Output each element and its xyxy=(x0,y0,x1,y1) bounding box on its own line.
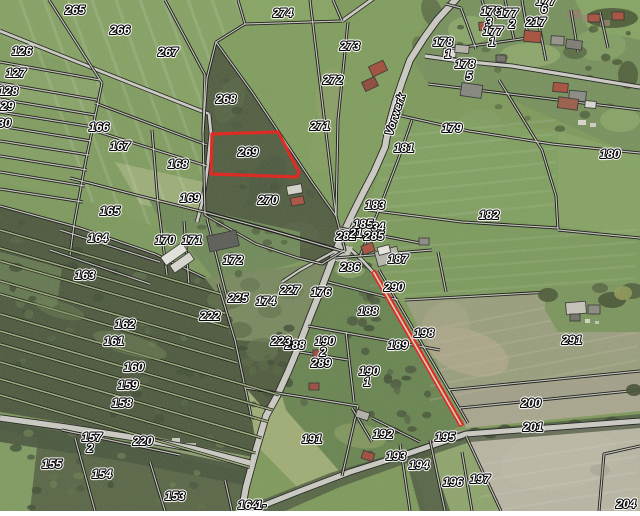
svg-text:220: 220 xyxy=(132,434,153,448)
svg-text:181: 181 xyxy=(394,141,414,155)
svg-text:176: 176 xyxy=(311,285,331,299)
svg-text:191: 191 xyxy=(302,432,322,446)
svg-text:182: 182 xyxy=(479,208,499,222)
svg-text:200: 200 xyxy=(520,396,541,410)
svg-text:153: 153 xyxy=(165,489,185,503)
svg-text:162: 162 xyxy=(115,317,135,331)
svg-text:227: 227 xyxy=(279,283,301,297)
svg-text:180: 180 xyxy=(600,147,620,161)
svg-text:126: 126 xyxy=(12,44,32,58)
svg-text:291: 291 xyxy=(561,333,582,347)
svg-text:192: 192 xyxy=(373,427,393,441)
svg-text:163: 163 xyxy=(75,268,95,282)
svg-text:179: 179 xyxy=(442,121,462,135)
svg-text:160: 160 xyxy=(124,360,144,374)
svg-text:174: 174 xyxy=(256,294,276,308)
svg-text:154: 154 xyxy=(92,467,112,481)
svg-text:267: 267 xyxy=(157,45,179,59)
svg-text:195: 195 xyxy=(435,430,455,444)
svg-text:286: 286 xyxy=(339,260,360,274)
svg-text:188: 188 xyxy=(358,304,378,318)
svg-text:204: 204 xyxy=(615,497,636,511)
svg-text:223: 223 xyxy=(270,334,291,348)
svg-text:273: 273 xyxy=(339,39,360,53)
svg-text:201: 201 xyxy=(522,420,543,434)
svg-text:222: 222 xyxy=(199,309,220,323)
svg-text:183: 183 xyxy=(365,198,385,212)
svg-text:130: 130 xyxy=(0,116,11,130)
svg-text:168: 168 xyxy=(168,157,188,171)
svg-text:289: 289 xyxy=(310,356,331,370)
svg-text:5: 5 xyxy=(466,69,473,83)
svg-text:129: 129 xyxy=(0,99,14,113)
svg-text:193: 193 xyxy=(386,449,406,463)
svg-text:171: 171 xyxy=(182,233,202,247)
svg-text:172: 172 xyxy=(223,253,243,267)
svg-text:266: 266 xyxy=(109,23,130,37)
svg-text:270: 270 xyxy=(257,193,278,207)
svg-text:1: 1 xyxy=(364,375,371,389)
svg-text:170: 170 xyxy=(155,233,175,247)
svg-text:166: 166 xyxy=(89,120,109,134)
svg-text:187: 187 xyxy=(388,252,409,266)
svg-text:128: 128 xyxy=(0,84,18,98)
svg-text:194: 194 xyxy=(409,458,429,472)
svg-text:265: 265 xyxy=(64,3,85,17)
svg-text:1: 1 xyxy=(489,35,496,49)
svg-text:21: 21 xyxy=(348,226,363,240)
svg-text:167: 167 xyxy=(110,139,131,153)
svg-text:1: 1 xyxy=(445,47,452,61)
svg-text:2: 2 xyxy=(508,17,516,31)
svg-text:272: 272 xyxy=(322,73,343,87)
svg-text:290: 290 xyxy=(383,280,404,294)
svg-text:189: 189 xyxy=(388,338,408,352)
svg-text:196: 196 xyxy=(443,475,463,489)
svg-text:197: 197 xyxy=(470,472,491,486)
svg-text:198: 198 xyxy=(414,326,434,340)
svg-text:6: 6 xyxy=(541,2,548,16)
svg-text:155: 155 xyxy=(42,457,62,471)
svg-text:-285: -285 xyxy=(360,229,384,243)
svg-text:268: 268 xyxy=(215,92,236,106)
svg-text:158: 158 xyxy=(112,396,132,410)
svg-text:269: 269 xyxy=(237,145,258,159)
svg-text:1-: 1- xyxy=(256,498,267,511)
svg-text:271: 271 xyxy=(309,119,330,133)
svg-text:127: 127 xyxy=(6,66,27,80)
svg-text:169: 169 xyxy=(180,191,200,205)
svg-text:225: 225 xyxy=(227,291,248,305)
svg-text:161: 161 xyxy=(104,334,124,348)
svg-text:159: 159 xyxy=(118,378,138,392)
svg-text:164: 164 xyxy=(88,231,108,245)
svg-text:2: 2 xyxy=(86,441,94,455)
svg-text:217: 217 xyxy=(525,15,547,29)
svg-text:274: 274 xyxy=(272,6,293,20)
svg-text:165: 165 xyxy=(100,204,120,218)
